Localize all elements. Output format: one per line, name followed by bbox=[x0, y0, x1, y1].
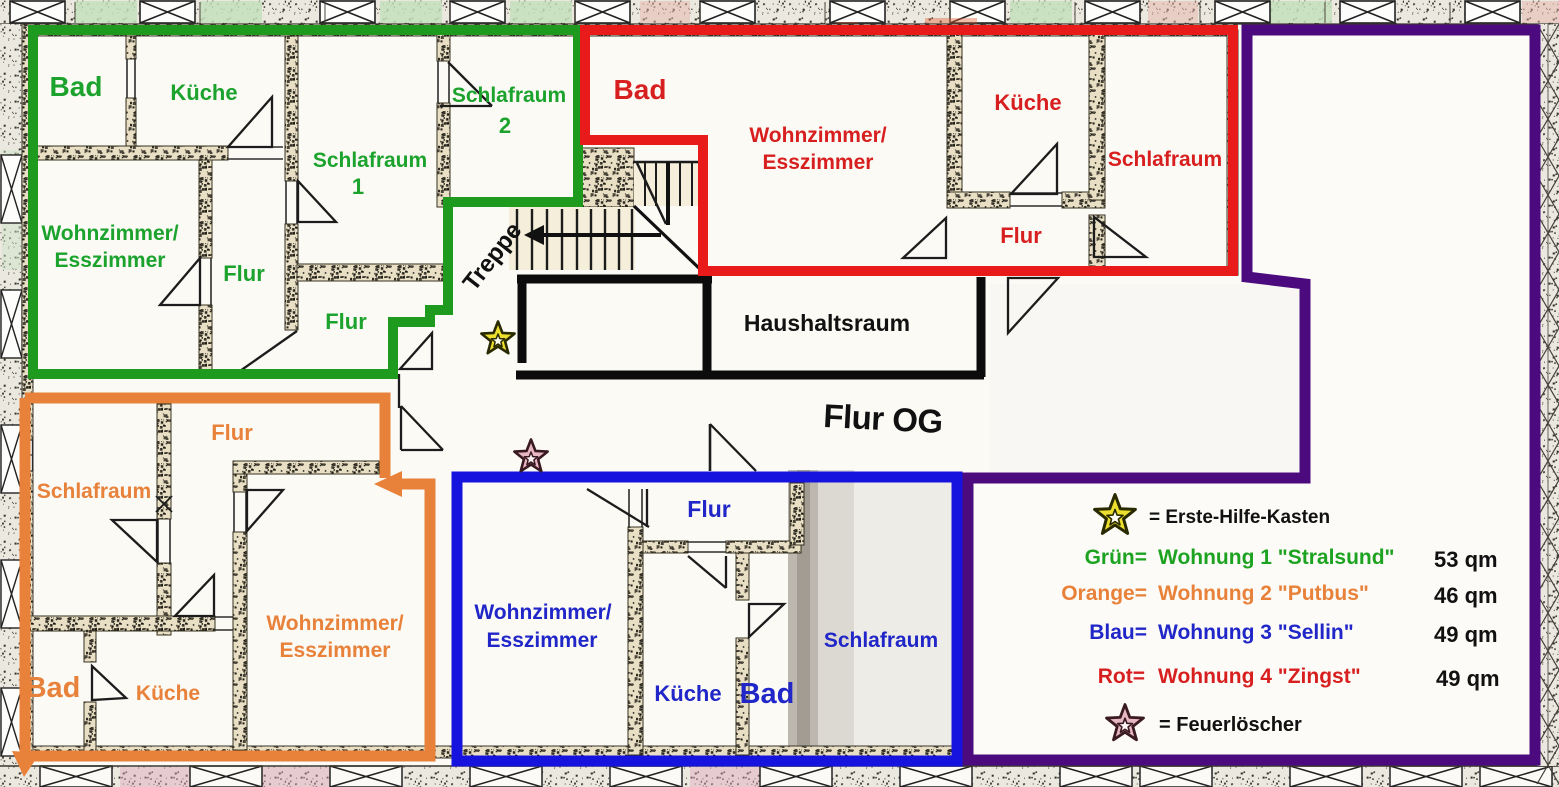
svg-text:Esszimmer: Esszimmer bbox=[280, 639, 391, 662]
svg-text:Schlafraum: Schlafraum bbox=[37, 480, 151, 503]
svg-text:2: 2 bbox=[499, 113, 511, 138]
svg-text:Küche: Küche bbox=[136, 682, 200, 705]
svg-text:= Erste-Hilfe-Kasten: = Erste-Hilfe-Kasten bbox=[1149, 507, 1330, 528]
svg-text:Küche: Küche bbox=[654, 681, 721, 706]
svg-text:Schlafraum: Schlafraum bbox=[313, 149, 427, 172]
svg-text:Schlafraum: Schlafraum bbox=[452, 84, 566, 107]
svg-text:Schlafraum: Schlafraum bbox=[824, 629, 938, 652]
svg-text:46 qm: 46 qm bbox=[1434, 583, 1498, 608]
svg-text:Küche: Küche bbox=[170, 80, 237, 105]
svg-text:= Feuerlöscher: = Feuerlöscher bbox=[1159, 714, 1302, 736]
svg-text:53 qm: 53 qm bbox=[1434, 547, 1498, 572]
svg-text:Bad: Bad bbox=[50, 71, 103, 102]
svg-text:49 qm: 49 qm bbox=[1434, 622, 1498, 647]
svg-text:Blau=: Blau= bbox=[1089, 621, 1147, 644]
svg-text:Rot=: Rot= bbox=[1098, 665, 1145, 688]
svg-text:Esszimmer: Esszimmer bbox=[487, 629, 598, 652]
svg-text:Flur: Flur bbox=[223, 261, 265, 286]
svg-text:Wohnung 4 "Zingst": Wohnung 4 "Zingst" bbox=[1158, 665, 1361, 688]
svg-text:Flur: Flur bbox=[687, 496, 730, 522]
svg-text:Wohnzimmer/: Wohnzimmer/ bbox=[749, 124, 886, 147]
svg-text:Wohnzimmer/: Wohnzimmer/ bbox=[266, 612, 403, 635]
svg-text:Grün=: Grün= bbox=[1085, 546, 1147, 569]
svg-text:Esszimmer: Esszimmer bbox=[55, 249, 166, 272]
svg-text:Orange=: Orange= bbox=[1061, 582, 1147, 605]
svg-text:Flur: Flur bbox=[211, 420, 253, 445]
svg-text:Wohnung 1 "Stralsund": Wohnung 1 "Stralsund" bbox=[1158, 546, 1395, 569]
svg-text:Haushaltsraum: Haushaltsraum bbox=[744, 310, 910, 336]
svg-text:Schlafraum: Schlafraum bbox=[1108, 148, 1222, 171]
svg-text:Bad: Bad bbox=[614, 74, 667, 105]
svg-text:Küche: Küche bbox=[994, 90, 1061, 115]
svg-text:Flur: Flur bbox=[325, 309, 367, 334]
svg-text:Wohnung 2 "Putbus": Wohnung 2 "Putbus" bbox=[1158, 582, 1369, 605]
svg-text:Wohnzimmer/: Wohnzimmer/ bbox=[41, 222, 178, 245]
svg-text:Bad: Bad bbox=[740, 678, 795, 710]
svg-text:Flur: Flur bbox=[1000, 223, 1042, 248]
svg-text:Flur OG: Flur OG bbox=[822, 397, 943, 440]
svg-text:Esszimmer: Esszimmer bbox=[763, 151, 874, 174]
svg-text:49 qm: 49 qm bbox=[1436, 666, 1500, 691]
svg-text:Bad: Bad bbox=[26, 672, 81, 704]
svg-text:Wohnzimmer/: Wohnzimmer/ bbox=[474, 601, 611, 624]
svg-text:1: 1 bbox=[352, 174, 364, 199]
svg-text:Wohnung 3 "Sellin": Wohnung 3 "Sellin" bbox=[1158, 621, 1354, 644]
